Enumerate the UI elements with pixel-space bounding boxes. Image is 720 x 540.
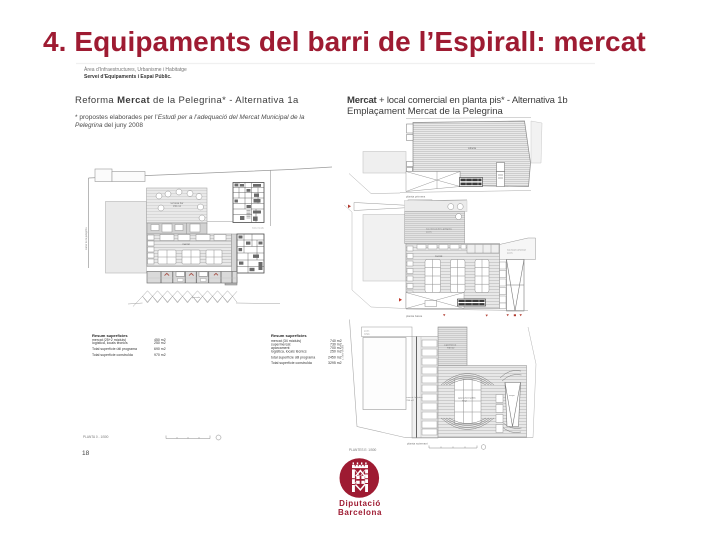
svg-text:nou local comercial: nou local comercial <box>507 249 526 252</box>
svg-text:250 m2: 250 m2 <box>407 400 415 402</box>
svg-text:accés: accés <box>426 232 433 234</box>
svg-text:planta soterrani: planta soterrani <box>407 442 428 446</box>
svg-text:porxada: porxada <box>192 296 201 299</box>
svg-text:250 m2: 250 m2 <box>330 350 342 354</box>
svg-text:mercat: logística: mercat: logística <box>407 396 424 399</box>
svg-text:3295 m2: 3295 m2 <box>328 361 342 365</box>
svg-text:rampa: rampa <box>509 395 516 397</box>
svg-text:nou mercat de la pelegrina: nou mercat de la pelegrina <box>426 228 453 231</box>
svg-text:nova escala: nova escala <box>252 228 264 230</box>
svg-text:coberta: coberta <box>468 147 477 150</box>
svg-text:mercat: mercat <box>182 243 190 246</box>
svg-text:Resum superficies: Resum superficies <box>271 333 307 338</box>
svg-text:730 m2: 730 m2 <box>447 348 455 350</box>
svg-text:150 m2: 150 m2 <box>173 205 182 208</box>
svg-text:carrer de la pelegrina: carrer de la pelegrina <box>85 227 88 250</box>
svg-text:74 pl: 74 pl <box>462 401 467 403</box>
svg-text:planta baixa: planta baixa <box>406 314 423 318</box>
svg-text:aparcament públic: aparcament públic <box>458 397 477 400</box>
svg-text:accés: accés <box>507 253 514 255</box>
svg-text:rampa: rampa <box>364 334 371 336</box>
svg-text:total superfície útil programa: total superfície útil programa <box>271 356 315 360</box>
svg-text:2450 m2: 2450 m2 <box>328 356 342 360</box>
svg-text:planta primera: planta primera <box>406 195 426 199</box>
svg-text:PLANTA 0 - 1/500: PLANTA 0 - 1/500 <box>83 435 109 439</box>
svg-text:logística, locals tècnics: logística, locals tècnics <box>92 341 128 345</box>
svg-text:PLANTES E: 1/500: PLANTES E: 1/500 <box>349 448 377 452</box>
svg-text:accés: accés <box>364 331 369 333</box>
svg-text:Total superfície construïda: Total superfície construïda <box>271 361 312 365</box>
svg-text:Total superfície útil programa: Total superfície útil programa <box>92 347 137 351</box>
svg-text:supermercat: supermercat <box>444 344 457 347</box>
svg-text:970 m2: 970 m2 <box>154 353 166 357</box>
svg-text:logística, locals tècnics: logística, locals tècnics <box>271 350 307 354</box>
svg-text:c. dels vinyets: c. dels vinyets <box>342 344 345 360</box>
svg-text:250 m2: 250 m2 <box>154 341 166 345</box>
svg-text:Total superfície construïda: Total superfície construïda <box>92 353 133 357</box>
svg-text:690 m2: 690 m2 <box>154 347 166 351</box>
svg-text:mercat: mercat <box>435 255 443 258</box>
